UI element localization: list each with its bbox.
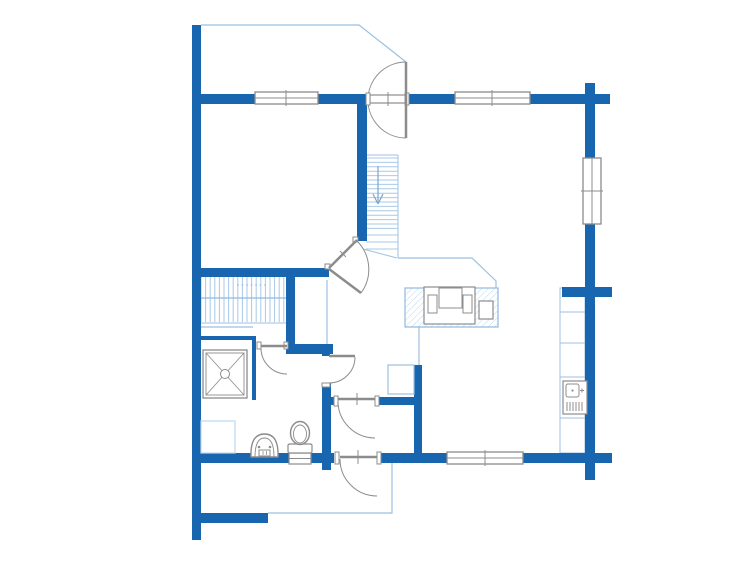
floor-plan-svg bbox=[0, 0, 755, 566]
porch-bottom-edge bbox=[268, 463, 392, 513]
vestibule-closet bbox=[388, 365, 414, 394]
hob bbox=[479, 301, 493, 319]
stove-dot bbox=[571, 389, 573, 391]
door-entry-south-jamb bbox=[335, 452, 339, 464]
wall-right-c bbox=[585, 297, 595, 453]
door-entry-south bbox=[335, 450, 381, 496]
wall-right-a bbox=[585, 104, 595, 160]
wall-closet-jamb bbox=[322, 352, 330, 356]
wall-top-c bbox=[406, 94, 455, 104]
window-right bbox=[581, 158, 603, 224]
shower-wall-north bbox=[195, 336, 253, 340]
door-entry-south-swing-arc bbox=[340, 459, 377, 496]
wall-top-b bbox=[318, 94, 370, 104]
shower-wall-east bbox=[252, 336, 256, 400]
wall-joint-east bbox=[562, 287, 612, 297]
wall-top-d bbox=[530, 94, 610, 104]
door-entry-south-jamb bbox=[377, 452, 381, 464]
washbasin-tap bbox=[258, 446, 261, 449]
wall-right-b bbox=[585, 223, 595, 287]
wall-vestibule-east bbox=[414, 365, 422, 453]
entry-door-north bbox=[366, 62, 409, 138]
wall-bottom-c bbox=[523, 453, 612, 463]
door-closet bbox=[322, 356, 355, 387]
stove bbox=[563, 381, 587, 414]
shower-drain bbox=[221, 370, 230, 379]
loft-edge bbox=[398, 258, 496, 288]
kitchen-wall-cabinets bbox=[560, 288, 585, 453]
door-washroom bbox=[257, 342, 288, 374]
sink-basin-right bbox=[463, 295, 472, 313]
door-vestibule-inner bbox=[334, 393, 379, 438]
door-closet-swing-arc bbox=[329, 357, 355, 383]
wall-top-a bbox=[201, 94, 255, 104]
stairs-upper-flight bbox=[363, 155, 398, 258]
window-top-left bbox=[255, 90, 318, 106]
porch-top-edge bbox=[201, 25, 406, 62]
door-washroom-swing-arc bbox=[261, 348, 287, 374]
shower-tray bbox=[203, 350, 247, 398]
entry-door-north-jamb bbox=[366, 93, 370, 105]
sink-basin-left bbox=[428, 295, 437, 313]
wall-stairs-west bbox=[357, 104, 367, 241]
door-vestibule-inner-jamb bbox=[375, 396, 379, 406]
door-vestibule-inner-jamb bbox=[334, 396, 338, 406]
door-closet-jamb bbox=[322, 383, 330, 387]
sink-basin-center bbox=[439, 288, 462, 308]
wall-hall-west-lower bbox=[322, 383, 331, 470]
wall-right-stub-bottom bbox=[585, 463, 595, 480]
wall-vestibule-south-b bbox=[375, 397, 418, 405]
washbasin bbox=[251, 434, 278, 457]
door-living-diagonal bbox=[325, 237, 369, 293]
wall-bedroom-south bbox=[192, 268, 329, 277]
toilet bbox=[288, 422, 312, 465]
wall-right-stub-top bbox=[585, 83, 595, 94]
stairs-lower-flight bbox=[201, 277, 286, 323]
floor-plan-canvas bbox=[0, 0, 755, 566]
wall-closet-west bbox=[286, 271, 295, 345]
window-bottom bbox=[447, 450, 523, 466]
window-top-right bbox=[455, 90, 530, 106]
washbasin-tap bbox=[269, 446, 272, 449]
wall-porch-south bbox=[198, 513, 268, 523]
bathroom-bench bbox=[201, 421, 235, 453]
toilet-tank bbox=[288, 444, 312, 453]
washbasin-drain bbox=[259, 450, 270, 456]
door-washroom-jamb bbox=[257, 342, 261, 349]
door-vestibule-inner-swing-arc bbox=[338, 401, 375, 438]
wall-bottom-b bbox=[377, 453, 448, 463]
